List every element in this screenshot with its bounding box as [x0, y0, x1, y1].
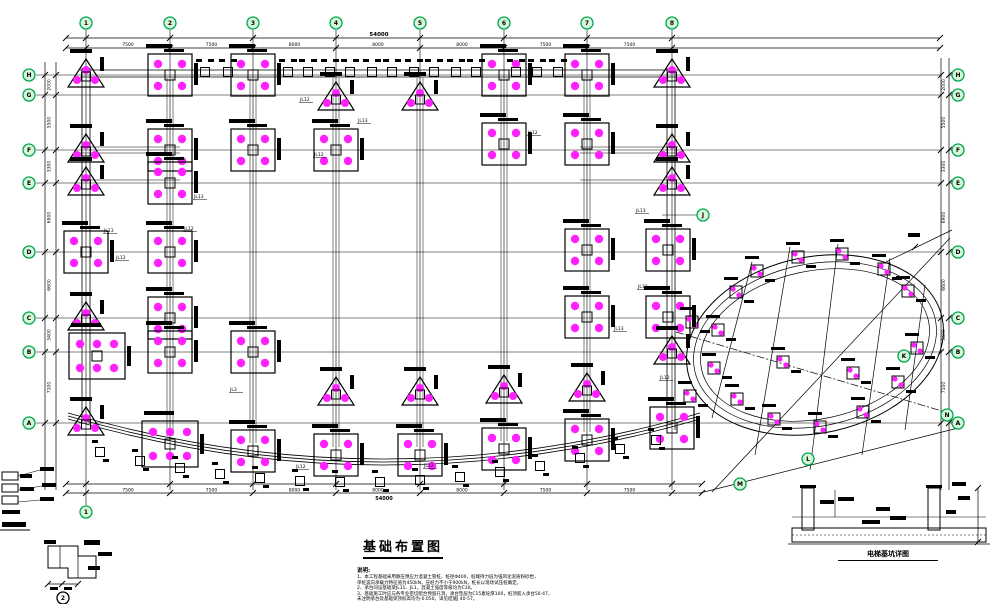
svg-text:G: G [27, 92, 32, 99]
svg-text:JL12: JL12 [659, 375, 670, 381]
svg-text:A: A [956, 420, 961, 427]
svg-text:N: N [944, 412, 949, 419]
notes-block: 说明: 1、本工程基础采用静压预应力混凝土管桩，桩径Φ400，桩端持力层为强风化… [357, 566, 547, 603]
svg-text:6600: 6600 [941, 279, 947, 291]
svg-text:5500: 5500 [941, 117, 947, 129]
svg-text:JL12: JL12 [423, 463, 434, 469]
svg-text:54000: 54000 [369, 32, 388, 38]
svg-text:3300: 3300 [941, 161, 947, 173]
svg-text:JL13: JL13 [103, 228, 114, 234]
svg-text:H: H [26, 72, 31, 79]
svg-text:J: J [701, 212, 704, 219]
svg-text:B: B [27, 349, 32, 356]
svg-text:M: M [737, 481, 743, 488]
svg-text:8: 8 [670, 20, 674, 27]
svg-text:3400: 3400 [941, 329, 947, 341]
svg-text:6: 6 [502, 20, 506, 27]
drawing-title: 基础布置图 [363, 536, 443, 559]
svg-text:JL12: JL12 [295, 464, 306, 470]
svg-text:E: E [27, 180, 31, 187]
svg-text:JL13: JL13 [613, 326, 624, 332]
svg-text:8000: 8000 [289, 42, 301, 48]
svg-text:JL12: JL12 [637, 284, 648, 290]
notes-list: 1、本工程基础采用静压预应力混凝土管桩，桩径Φ400，桩端持力层为强风化泥质粉砂… [357, 575, 547, 603]
svg-text:6900: 6900 [47, 212, 53, 224]
svg-text:3400: 3400 [47, 329, 53, 341]
svg-text:K: K [902, 353, 907, 360]
svg-text:JL12: JL12 [313, 152, 324, 158]
svg-text:5: 5 [418, 20, 422, 27]
svg-text:D: D [27, 249, 32, 256]
svg-text:7500: 7500 [540, 42, 552, 48]
foundation-plan-canvas: 7500750075007500800080008000800080008000… [0, 0, 1000, 604]
svg-text:7500: 7500 [540, 488, 552, 494]
svg-text:2: 2 [168, 20, 172, 27]
svg-text:JL12: JL12 [183, 226, 194, 232]
svg-text:E: E [956, 180, 960, 187]
section-detail-caption: 电梯基坑详图 [838, 549, 938, 561]
detail-wall-section [0, 467, 56, 530]
svg-text:6600: 6600 [47, 279, 53, 291]
svg-text:7100: 7100 [47, 382, 53, 394]
svg-text:1: 1 [84, 509, 88, 516]
svg-text:8000: 8000 [456, 42, 468, 48]
svg-text:7100: 7100 [941, 382, 947, 394]
svg-text:3: 3 [251, 20, 255, 27]
note-line: 未注明承台及基础梁顶标高均为-0.050，详见结施J 40-57。 [357, 597, 547, 603]
svg-text:7500: 7500 [624, 488, 636, 494]
svg-text:C: C [956, 315, 961, 322]
svg-text:7500: 7500 [206, 42, 218, 48]
svg-text:A: A [27, 420, 32, 427]
svg-text:JL3: JL3 [229, 387, 237, 393]
svg-text:54000: 54000 [375, 496, 393, 502]
svg-text:8000: 8000 [289, 488, 301, 494]
svg-text:2000: 2000 [941, 79, 947, 91]
svg-text:B: B [956, 349, 961, 356]
section-detail [788, 482, 990, 545]
svg-text:JL13: JL13 [357, 118, 368, 124]
svg-text:7500: 7500 [122, 42, 134, 48]
svg-text:7500: 7500 [206, 488, 218, 494]
plan-drawing: 7500750075007500800080008000800080008000… [0, 0, 1000, 604]
svg-text:1: 1 [84, 20, 88, 27]
svg-text:8000: 8000 [372, 42, 384, 48]
note-line: 1、本工程基础采用静压预应力混凝土管桩，桩径Φ400，桩端持力层为强风化泥质粉砂… [357, 575, 547, 581]
svg-text:JL12: JL12 [299, 97, 310, 103]
svg-text:G: G [956, 92, 961, 99]
pile-caps [64, 54, 923, 476]
svg-text:7500: 7500 [122, 488, 134, 494]
svg-text:C: C [27, 315, 32, 322]
svg-text:L: L [806, 456, 810, 463]
svg-text:5500: 5500 [47, 117, 53, 129]
detail-plan [44, 540, 112, 590]
svg-text:F: F [27, 147, 31, 154]
svg-text:2: 2 [61, 595, 65, 602]
notes-heading: 说明: [357, 566, 547, 574]
svg-text:H: H [955, 72, 960, 79]
svg-text:JL12: JL12 [527, 130, 538, 136]
svg-text:D: D [956, 249, 961, 256]
svg-text:6900: 6900 [941, 212, 947, 224]
svg-text:F: F [956, 147, 960, 154]
svg-text:2000: 2000 [47, 79, 53, 91]
svg-text:7500: 7500 [624, 42, 636, 48]
svg-text:8000: 8000 [456, 488, 468, 494]
footings [92, 59, 665, 492]
svg-text:8000: 8000 [372, 488, 384, 494]
svg-text:JL13: JL13 [635, 208, 646, 214]
svg-text:7: 7 [585, 20, 589, 27]
svg-text:4: 4 [334, 20, 338, 27]
axis-bubbles: 12345678HHGGFFEEDDCCBBAAJKLMN12 [23, 17, 964, 604]
svg-text:JL13: JL13 [193, 194, 204, 200]
svg-text:JL12: JL12 [115, 255, 126, 261]
svg-text:3300: 3300 [47, 161, 53, 173]
